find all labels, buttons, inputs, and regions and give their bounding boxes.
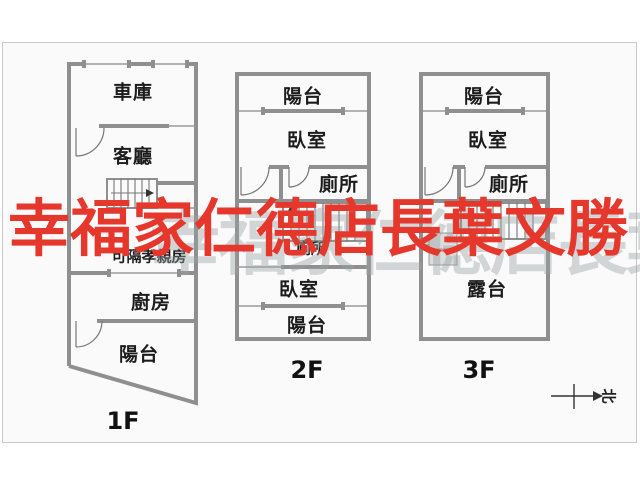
door-arc-2f-toilet <box>289 167 309 187</box>
room-label-balcony-1f: 陽台 <box>119 340 159 367</box>
room-label-garage: 車庫 <box>113 78 153 105</box>
room-label-bedroom-3f: 臥室 <box>468 126 508 153</box>
floor-label-3f: 3F <box>462 356 495 384</box>
door-arc-living <box>76 128 104 156</box>
room-label-balcony-2f-bottom: 陽台 <box>287 311 327 338</box>
compass-icon <box>551 384 603 409</box>
floor-label-1f: 1F <box>106 407 139 435</box>
door-arc-3f-toilet <box>465 167 485 187</box>
room-label-bedroom-2f-top: 臥室 <box>287 126 327 153</box>
room-label-living: 客廳 <box>113 142 153 169</box>
floor-label-2f: 2F <box>290 356 323 384</box>
door-arc-3f-landing <box>425 167 453 195</box>
door-arc-kitchen-balcony <box>76 321 102 347</box>
door-arc-2f-landing <box>241 167 269 195</box>
compass-north-label: 北 <box>599 388 620 403</box>
room-label-kitchen: 廚房 <box>131 288 171 315</box>
room-label-balcony-3f: 陽台 <box>464 82 504 109</box>
room-label-balcony-2f-top: 陽台 <box>283 82 323 109</box>
watermark-red: 幸福家仁德店長葉文勝 <box>8 196 628 262</box>
